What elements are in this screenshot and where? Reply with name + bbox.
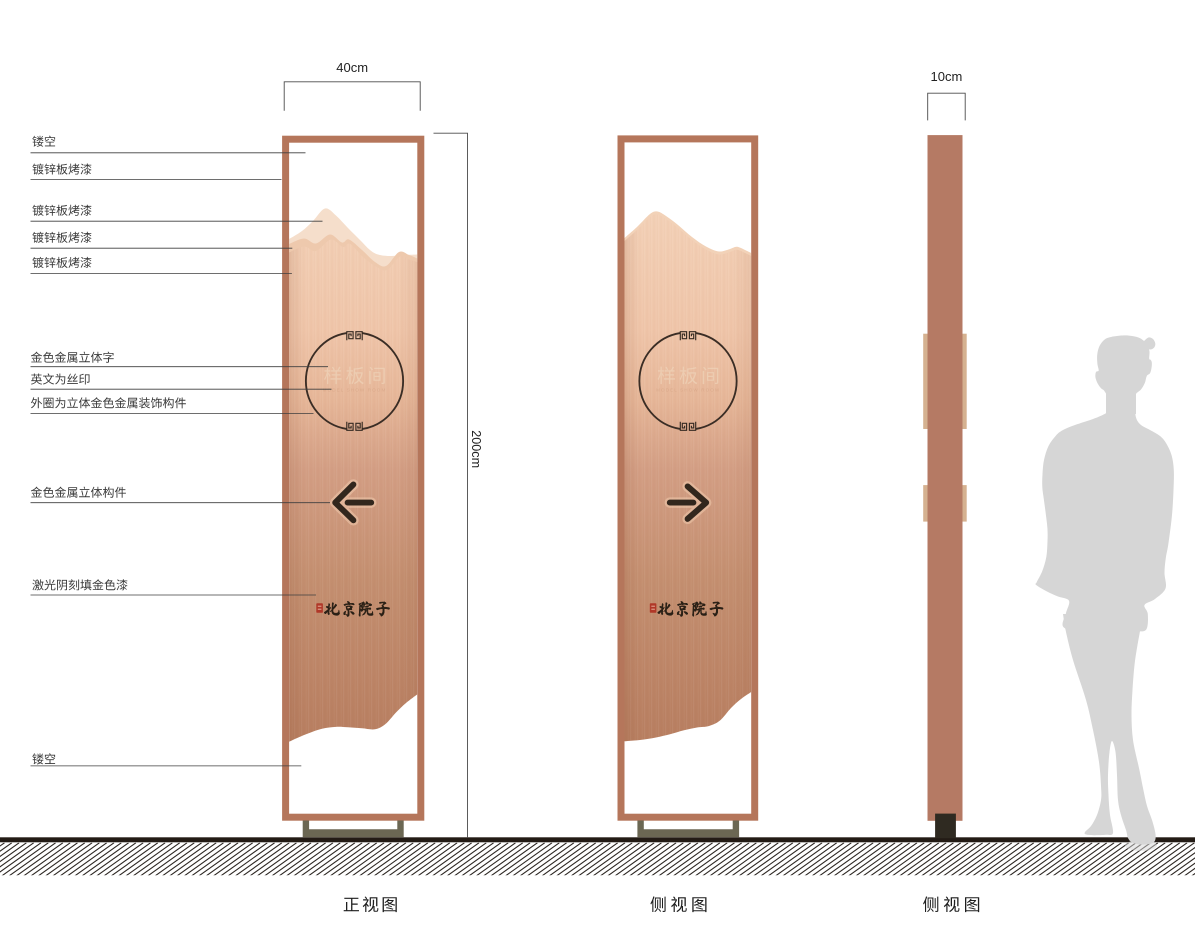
svg-text:MODEL SHOW ROOM: MODEL SHOW ROOM (323, 388, 387, 393)
svg-text:200cm: 200cm (469, 430, 483, 468)
svg-text:40cm: 40cm (336, 60, 368, 75)
svg-text:MODEL SHOW ROOM: MODEL SHOW ROOM (656, 388, 720, 393)
svg-text:10cm: 10cm (931, 69, 963, 84)
